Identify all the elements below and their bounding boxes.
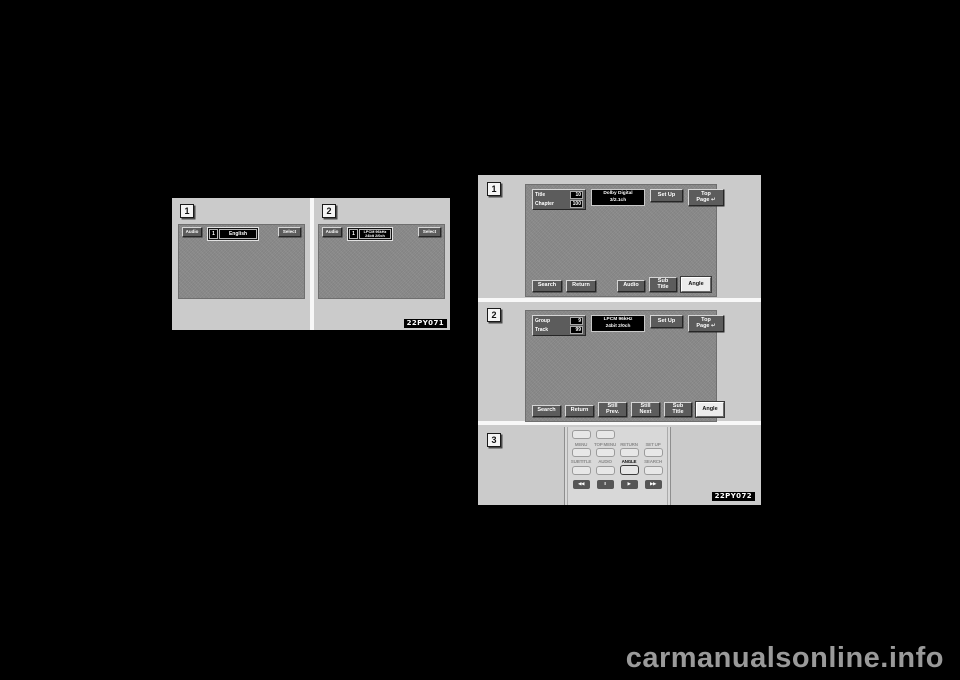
track-label: Track (535, 327, 548, 333)
return-button: Return (566, 280, 596, 292)
top-page-line-2: Page ↵ (696, 198, 715, 204)
figure-caption: 22PY071 (404, 319, 447, 328)
panel-divider (310, 198, 314, 330)
figure-dvd-operation: 1 Title 10 Chapter 100 Dolby Digital 3/2… (478, 175, 761, 505)
audio-track-display: 1 English (207, 227, 259, 241)
rewind-icon: ◀◀ (578, 482, 584, 487)
set-up-button: Set Up (650, 189, 683, 202)
return-label: RETURN (620, 442, 638, 447)
still-next-line-2: Next (640, 410, 652, 416)
menu-button (572, 448, 591, 457)
format-line-2: 3/2.1ch (592, 198, 644, 205)
sub-title-button: Sub Title (664, 402, 692, 417)
top-page-button: Top Page ↵ (688, 315, 724, 332)
return-button (620, 448, 639, 457)
unlabeled-button (572, 430, 591, 439)
remote-playback-row: ◀◀ II ▶ ▶▶ (564, 480, 671, 489)
search-button: Search (532, 280, 562, 292)
remote-label-row-2: SUBTITLE AUDIO ANGLE SEARCH (564, 459, 671, 464)
title-row: Title 10 (535, 191, 583, 199)
dvd-video-control-screen: Title 10 Chapter 100 Dolby Digital 3/2.1… (525, 184, 717, 297)
top-page-line-2: Page ↵ (696, 324, 715, 330)
audio-format-field: LPCM 96kHz 24bit 2/0ch (359, 229, 391, 239)
search-button: Search (532, 405, 561, 417)
menu-label: MENU (575, 442, 587, 447)
track-row: Track 99 (535, 326, 583, 334)
play-icon: ▶ (628, 482, 631, 487)
angle-button-highlighted (620, 465, 639, 475)
set-up-button (644, 448, 663, 457)
figure-caption: 22PY072 (712, 492, 755, 501)
sub-title-line-2: Title (657, 285, 668, 291)
remote-button-row-1 (564, 448, 671, 457)
angle-button-highlighted: Angle (681, 277, 711, 292)
site-watermark: carmanualsonline.info (626, 644, 944, 673)
chapter-label: Chapter (535, 201, 554, 207)
screen-top-bar: Audio 1 LPCM 96kHz 24bit 2/0ch Select (322, 227, 441, 241)
panel-number-badge: 1 (487, 182, 501, 196)
group-track-display: Group 9 Track 99 (532, 315, 586, 336)
panel-number-badge: 2 (322, 204, 336, 218)
select-button: Select (418, 227, 441, 237)
audio-track-display: 1 LPCM 96kHz 24bit 2/0ch (347, 227, 393, 241)
set-up-button: Set Up (650, 315, 683, 328)
rewind-button: ◀◀ (573, 480, 590, 489)
angle-button-highlighted: Angle (696, 402, 724, 417)
screen-bottom-row: Search Return Still Prev. Still Next Sub… (532, 402, 711, 417)
title-label: Title (535, 192, 545, 198)
audio-language-field: English (219, 229, 257, 239)
audio-format-display: Dolby Digital 3/2.1ch (591, 189, 645, 206)
search-label: SEARCH (644, 459, 662, 464)
still-prev-button: Still Prev. (598, 402, 627, 417)
screen-top-row: Title 10 Chapter 100 Dolby Digital 3/2.1… (532, 189, 711, 210)
audio-format-screen-dvd-audio: Audio 1 LPCM 96kHz 24bit 2/0ch Select (318, 224, 445, 299)
format-line-2: 24bit 2/0ch (365, 234, 385, 238)
remote-button-row-2 (564, 465, 671, 475)
audio-format-display: LPCM 96kHz 24bit 2/0ch (591, 315, 645, 332)
format-line-2: 24bit 2/0ch (592, 324, 644, 331)
sub-title-line-2: Title (672, 410, 683, 416)
remote-top-button-row (564, 430, 671, 439)
play-button: ▶ (621, 480, 638, 489)
subtitle-label: SUBTITLE (571, 459, 591, 464)
title-chapter-display: Title 10 Chapter 100 (532, 189, 586, 210)
group-row: Group 9 (535, 317, 583, 325)
audio-label: AUDIO (598, 459, 612, 464)
remote-label-row-1: MENU TOP MENU RETURN SET UP (564, 442, 671, 447)
group-value: 9 (570, 317, 583, 325)
set-up-label: SET UP (645, 442, 660, 447)
audio-button: Audio (617, 280, 645, 292)
subtitle-button (572, 466, 591, 475)
search-button (644, 466, 663, 475)
screen-top-bar: Audio 1 English Select (182, 227, 301, 241)
chapter-value: 100 (570, 200, 583, 208)
track-value: 99 (570, 326, 583, 334)
sub-title-button: Sub Title (649, 277, 677, 292)
screen-bottom-row: Search Return Audio Sub Title Angle (532, 277, 711, 292)
select-button: Select (278, 227, 301, 237)
top-menu-button (596, 448, 615, 457)
screen-top-row: Group 9 Track 99 LPCM 96kHz 24bit 2/0ch … (532, 315, 711, 336)
still-prev-line-2: Prev. (606, 410, 619, 416)
dvd-audio-control-screen: Group 9 Track 99 LPCM 96kHz 24bit 2/0ch … (525, 310, 717, 422)
fast-forward-icon: ▶▶ (650, 482, 656, 487)
audio-button: Audio (182, 227, 202, 237)
manual-page: 1 Audio 1 English Select 2 Audio 1 LPCM … (0, 0, 960, 680)
section-divider (478, 298, 761, 302)
panel-number-badge: 2 (487, 308, 501, 322)
pause-icon: II (604, 482, 606, 487)
remote-control-panel: MENU TOP MENU RETURN SET UP SUBTITLE AUD… (564, 427, 671, 505)
group-label: Group (535, 318, 550, 324)
still-next-button: Still Next (631, 402, 660, 417)
audio-number-field: 1 (349, 229, 358, 239)
angle-label-highlighted: ANGLE (622, 459, 637, 464)
title-value: 10 (570, 191, 583, 199)
return-button: Return (565, 405, 594, 417)
figure-audio-language: 1 Audio 1 English Select 2 Audio 1 LPCM … (172, 198, 450, 330)
audio-button: Audio (322, 227, 342, 237)
audio-language-screen-dvd-video: Audio 1 English Select (178, 224, 305, 299)
chapter-row: Chapter 100 (535, 200, 583, 208)
audio-number-field: 1 (209, 229, 218, 239)
top-page-button: Top Page ↵ (688, 189, 724, 206)
panel-number-badge: 3 (487, 433, 501, 447)
pause-button: II (597, 480, 614, 489)
fast-forward-button: ▶▶ (645, 480, 662, 489)
panel-number-badge: 1 (180, 204, 194, 218)
unlabeled-button (596, 430, 615, 439)
audio-button (596, 466, 615, 475)
top-menu-label: TOP MENU (594, 442, 616, 447)
